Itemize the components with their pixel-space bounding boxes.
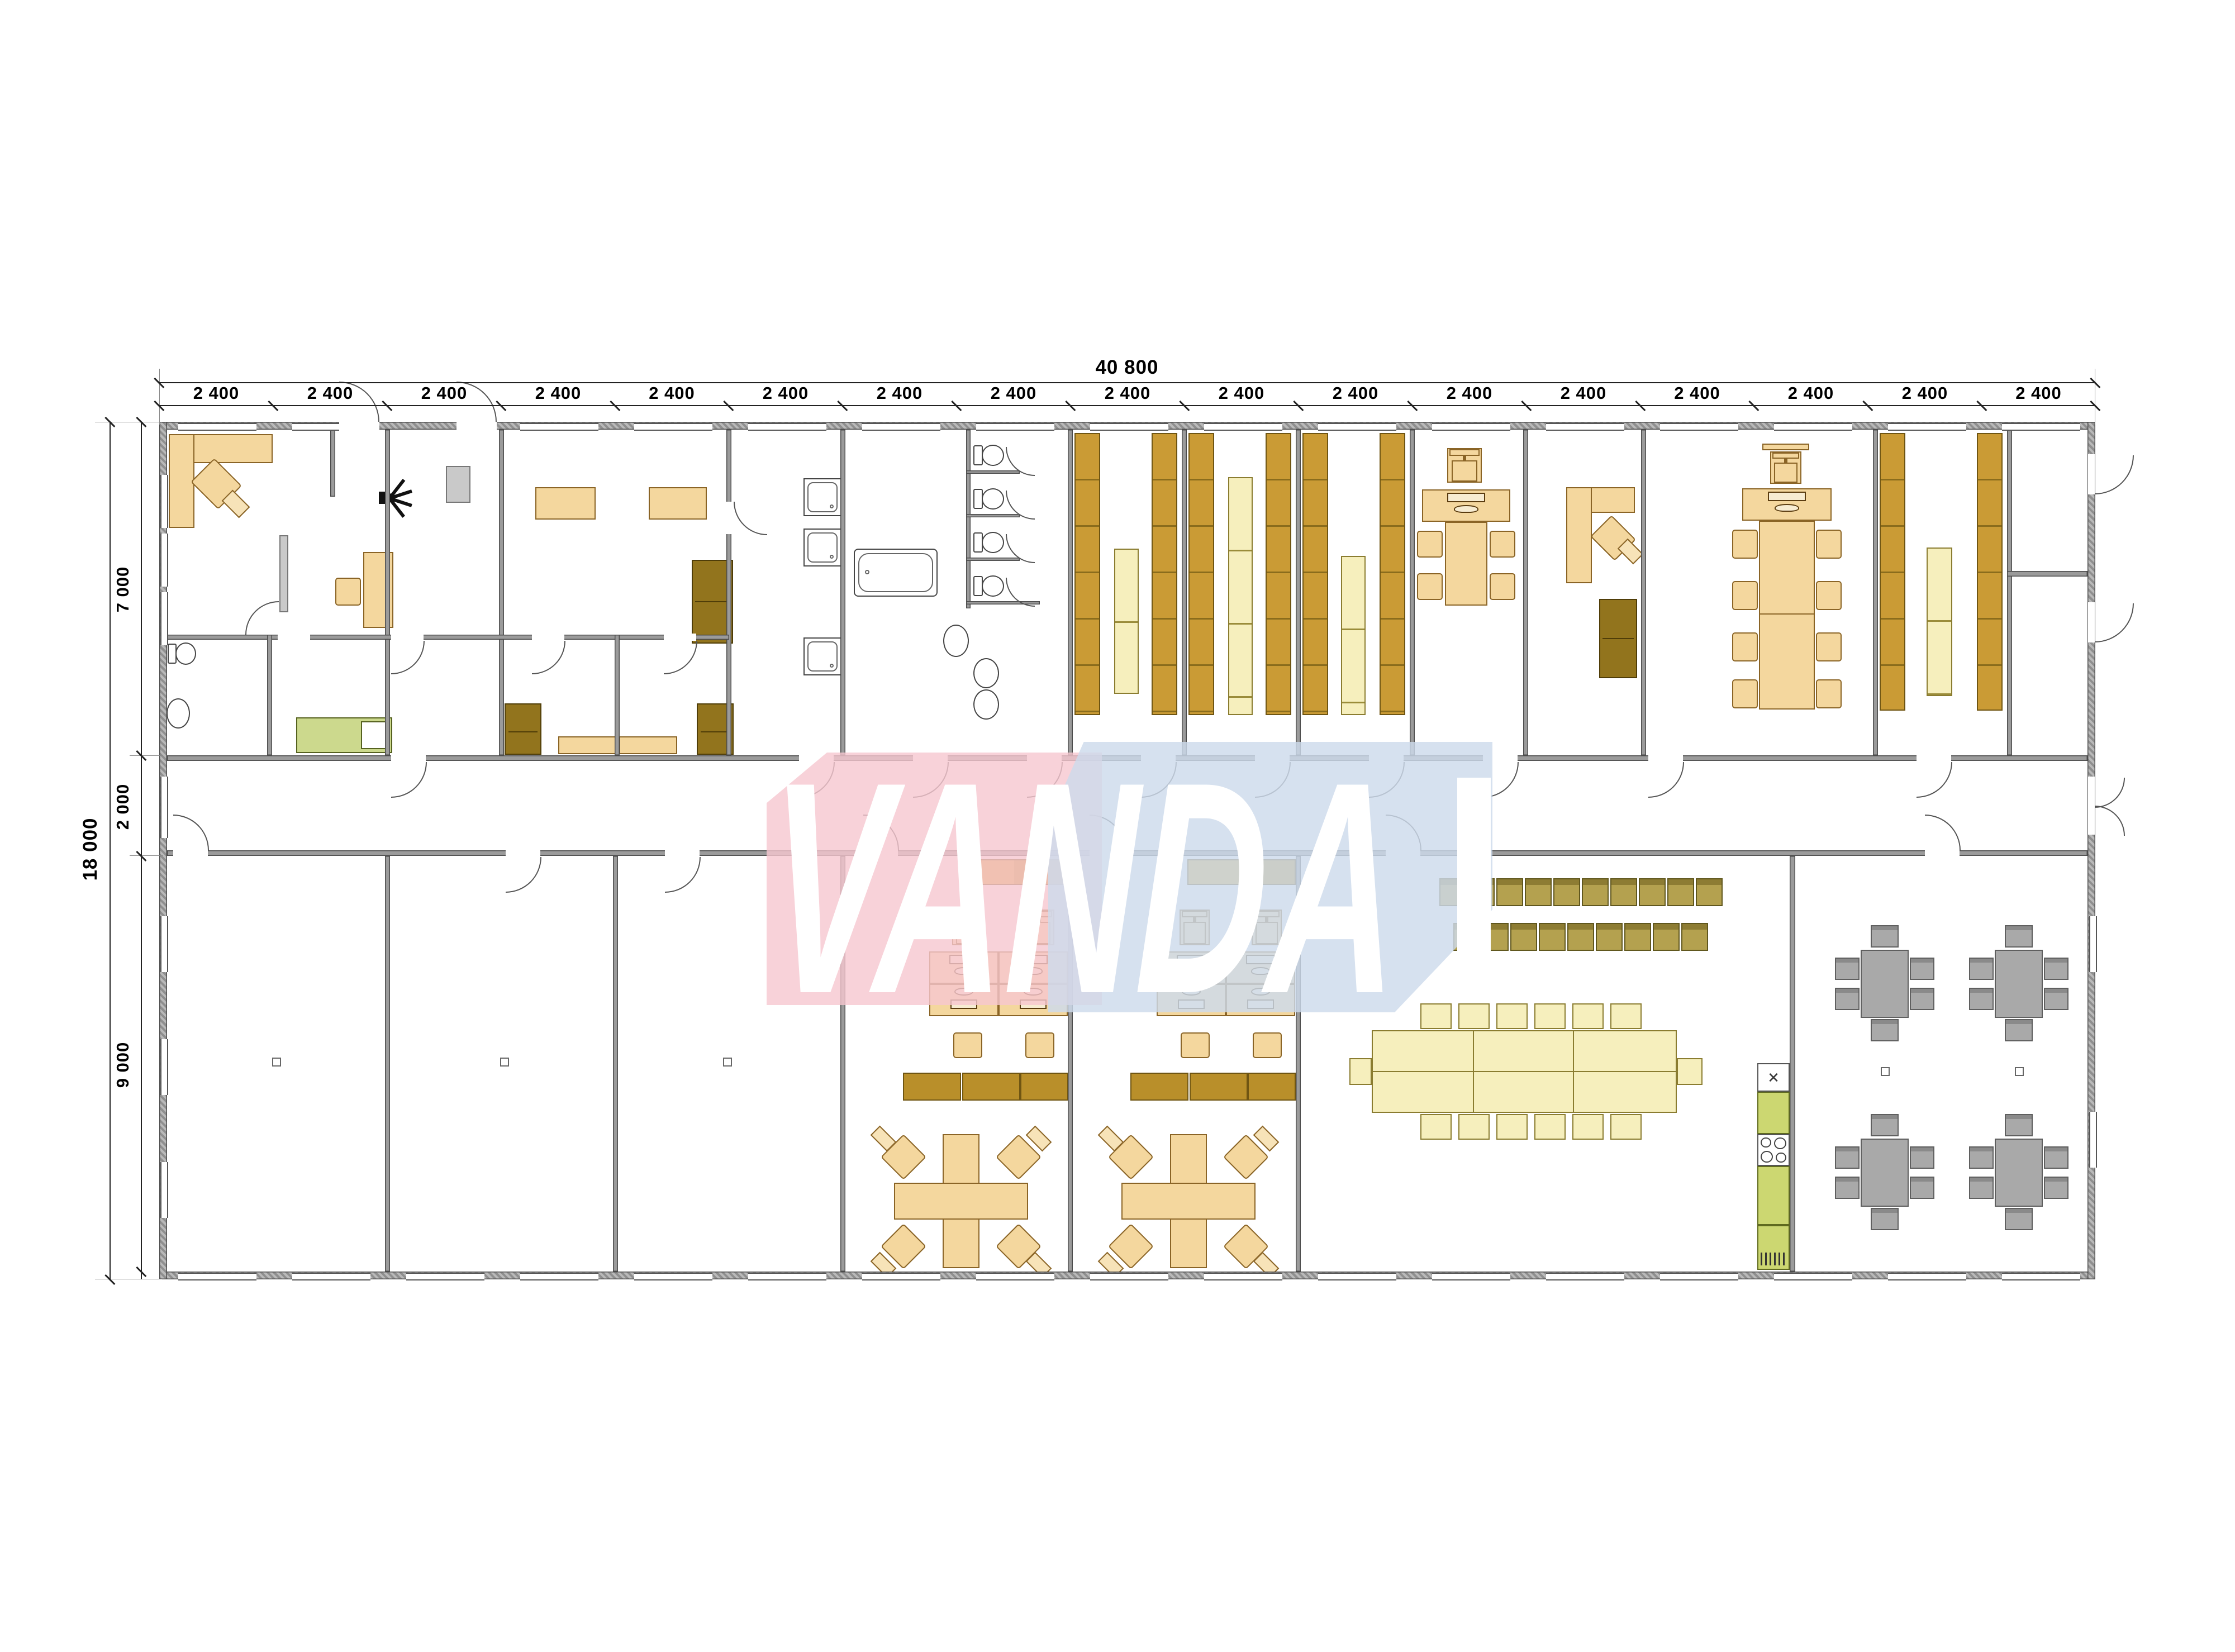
banquet-table bbox=[1372, 1030, 1677, 1113]
window bbox=[1204, 1273, 1282, 1280]
khaki-chair bbox=[1525, 878, 1552, 906]
khaki-chair bbox=[1496, 878, 1523, 906]
door-opening bbox=[278, 634, 310, 641]
khaki-chair bbox=[1596, 923, 1623, 951]
fridge bbox=[1757, 1225, 1790, 1270]
shower-stall bbox=[803, 637, 841, 675]
pale-chair bbox=[1420, 1114, 1452, 1140]
shelving-cabinet bbox=[1302, 433, 1328, 715]
dim-bay-label: 2 400 bbox=[525, 383, 592, 403]
sink bbox=[167, 698, 190, 729]
door-swing bbox=[2095, 455, 2134, 494]
canteen-chair bbox=[1871, 1114, 1899, 1136]
pale-chair bbox=[1610, 1114, 1642, 1140]
khaki-chair bbox=[1539, 923, 1566, 951]
door-swing bbox=[506, 857, 541, 893]
window bbox=[1888, 423, 1966, 431]
chair bbox=[1417, 573, 1443, 600]
interior-wall bbox=[966, 430, 971, 608]
door-opening bbox=[1648, 754, 1683, 762]
closet bbox=[446, 466, 470, 503]
chair bbox=[1816, 581, 1842, 610]
desk bbox=[535, 487, 596, 520]
door-opening bbox=[664, 634, 696, 641]
door-opening bbox=[339, 421, 379, 431]
window bbox=[1660, 423, 1738, 431]
canteen-chair bbox=[1871, 925, 1899, 948]
chair bbox=[1732, 679, 1758, 708]
storage-cabinet bbox=[1248, 1073, 1296, 1101]
interior-wall bbox=[1068, 430, 1073, 755]
chair bbox=[1816, 679, 1842, 708]
dim-bay-label: 2 400 bbox=[1777, 383, 1844, 403]
desk bbox=[619, 736, 677, 754]
khaki-chair bbox=[1610, 878, 1637, 906]
door-swing bbox=[1917, 762, 1952, 798]
canteen-chair bbox=[1969, 1146, 1994, 1169]
khaki-chair bbox=[1639, 878, 1666, 906]
window bbox=[634, 1273, 712, 1280]
toilet bbox=[973, 444, 1005, 467]
window bbox=[160, 1162, 168, 1218]
window bbox=[160, 475, 168, 528]
canteen-chair bbox=[2005, 1208, 2033, 1230]
door-swing bbox=[2095, 778, 2125, 808]
window bbox=[1660, 1273, 1738, 1280]
shower-stall bbox=[803, 529, 841, 566]
canteen-chair bbox=[1835, 988, 1860, 1010]
khaki-chair bbox=[1696, 878, 1723, 906]
interior-wall bbox=[613, 856, 618, 1272]
wall-light-icon bbox=[379, 480, 413, 515]
interior-wall bbox=[167, 635, 729, 640]
window bbox=[1432, 423, 1510, 431]
dim-left-total-label: 18 000 bbox=[79, 793, 102, 905]
shelving-cabinet bbox=[1188, 433, 1214, 715]
dim-line-bays bbox=[159, 405, 2095, 406]
storage-cabinet bbox=[1190, 1073, 1248, 1101]
door-swing bbox=[1648, 762, 1684, 798]
interior-wall bbox=[726, 430, 731, 755]
interior-wall bbox=[385, 856, 390, 1272]
shelving-cabinet bbox=[1380, 433, 1405, 715]
window bbox=[160, 592, 168, 645]
chair bbox=[1732, 530, 1758, 559]
table-end-extension bbox=[1349, 1058, 1372, 1085]
shelf-island bbox=[1228, 477, 1253, 715]
desk bbox=[558, 736, 616, 754]
dim-bay-label: 2 400 bbox=[752, 383, 819, 403]
dim-bay-label: 2 400 bbox=[639, 383, 706, 403]
door-opening bbox=[665, 849, 700, 857]
window bbox=[1774, 423, 1852, 431]
window bbox=[292, 1273, 370, 1280]
interior-wall bbox=[1410, 430, 1415, 755]
window bbox=[520, 423, 598, 431]
canteen-chair bbox=[2005, 1114, 2033, 1136]
interior-wall bbox=[2007, 571, 2087, 577]
canteen-chair bbox=[1835, 1146, 1860, 1169]
shelving-cabinet bbox=[1074, 433, 1100, 715]
dim-line-left-total bbox=[110, 422, 111, 1279]
canteen-chair bbox=[1871, 1208, 1899, 1230]
window bbox=[2002, 423, 2080, 431]
chair bbox=[1816, 632, 1842, 661]
interior-wall bbox=[1790, 856, 1795, 1272]
extension-line bbox=[95, 1279, 162, 1279]
storage-cabinet bbox=[903, 1073, 961, 1101]
canteen-chair bbox=[1969, 1177, 1994, 1199]
dim-left-7000-label: 7 000 bbox=[113, 534, 133, 645]
shelf-island bbox=[1114, 549, 1139, 694]
dim-bay-label: 2 400 bbox=[2005, 383, 2072, 403]
dim-bay-label: 2 400 bbox=[1664, 383, 1731, 403]
khaki-chair bbox=[1567, 923, 1594, 951]
shelving-cabinet bbox=[1266, 433, 1291, 715]
desk-with-computer bbox=[1422, 489, 1510, 522]
window bbox=[634, 423, 712, 431]
chair bbox=[1490, 573, 1515, 600]
storage-cabinet bbox=[1020, 1073, 1068, 1101]
window bbox=[748, 423, 826, 431]
sofa bbox=[1599, 599, 1637, 678]
pale-chair bbox=[1534, 1003, 1566, 1029]
floorplan-page: ✕ 40 800 18 000 7 000 2 000 9 000 2 4002… bbox=[0, 0, 2235, 1652]
window bbox=[160, 916, 168, 972]
canteen-chair bbox=[2044, 988, 2068, 1010]
table-end-extension bbox=[1677, 1058, 1703, 1085]
window bbox=[2002, 1273, 2080, 1280]
door-opening bbox=[456, 421, 497, 431]
canteen-chair bbox=[1910, 988, 1934, 1010]
stove bbox=[1757, 1134, 1790, 1166]
canteen-chair bbox=[1871, 1019, 1899, 1041]
pale-chair bbox=[1572, 1114, 1604, 1140]
armchair bbox=[505, 703, 541, 755]
canteen-chair bbox=[2044, 1177, 2068, 1199]
interior-wall bbox=[267, 635, 272, 755]
door-swing bbox=[2095, 806, 2125, 836]
window bbox=[160, 1039, 168, 1095]
window bbox=[1432, 1273, 1510, 1280]
interior-wall bbox=[966, 470, 1020, 474]
door-opening bbox=[173, 849, 208, 857]
canteen-table bbox=[1995, 950, 2043, 1018]
meeting-table bbox=[1759, 521, 1815, 710]
storage-cabinet bbox=[1130, 1073, 1188, 1101]
extension-line bbox=[95, 422, 162, 422]
khaki-chair bbox=[1653, 923, 1680, 951]
floor-marker bbox=[272, 1058, 281, 1067]
dim-bay-label: 2 400 bbox=[411, 383, 478, 403]
toilet bbox=[973, 487, 1005, 511]
khaki-chair bbox=[1681, 923, 1708, 951]
door-swing bbox=[2095, 603, 2134, 642]
canteen-chair bbox=[1910, 1177, 1934, 1199]
desk bbox=[1445, 522, 1487, 606]
interior-wall bbox=[1523, 430, 1528, 755]
khaki-chair bbox=[1624, 923, 1651, 951]
window bbox=[1318, 1273, 1396, 1280]
desk bbox=[169, 434, 194, 528]
door-swing bbox=[391, 641, 425, 674]
dim-bay-label: 2 400 bbox=[1436, 383, 1503, 403]
window bbox=[1204, 423, 1282, 431]
extension-line bbox=[130, 855, 163, 856]
door-swing bbox=[532, 641, 565, 674]
door-opening bbox=[506, 849, 540, 857]
dim-bay-label: 2 400 bbox=[1094, 383, 1161, 403]
dim-bay-label: 2 400 bbox=[183, 383, 250, 403]
canteen-chair bbox=[1969, 988, 1994, 1010]
window bbox=[160, 777, 168, 838]
dim-bay-label: 2 400 bbox=[1550, 383, 1617, 403]
floor-marker bbox=[500, 1058, 509, 1067]
window bbox=[2089, 1112, 2097, 1168]
kitchen-sink: ✕ bbox=[1757, 1063, 1790, 1092]
khaki-chair bbox=[1553, 878, 1580, 906]
dim-bay-label: 2 400 bbox=[980, 383, 1047, 403]
interior-wall bbox=[385, 430, 390, 755]
interior-wall bbox=[1873, 430, 1878, 755]
canteen-table bbox=[1861, 950, 1909, 1018]
dim-line-left-segments bbox=[141, 422, 142, 1279]
window bbox=[1774, 1273, 1852, 1280]
toilet bbox=[973, 531, 1005, 554]
khaki-chair bbox=[1582, 878, 1609, 906]
shelf-island bbox=[1927, 548, 1952, 696]
interior-wall bbox=[966, 558, 1020, 561]
canteen-chair bbox=[1910, 1146, 1934, 1169]
chair bbox=[1816, 530, 1842, 559]
desk bbox=[1121, 1183, 1256, 1220]
monitor bbox=[1770, 451, 1801, 484]
extension-line bbox=[130, 755, 163, 756]
canteen-chair bbox=[2044, 1146, 2068, 1169]
canteen-chair bbox=[2044, 958, 2068, 980]
door-swing bbox=[664, 641, 697, 674]
dim-bay-label: 2 400 bbox=[297, 383, 364, 403]
window bbox=[178, 423, 256, 431]
chair bbox=[335, 578, 361, 606]
interior-wall bbox=[966, 514, 1020, 517]
door-opening bbox=[391, 754, 426, 762]
watermark-bar bbox=[1457, 778, 1491, 963]
interior-wall bbox=[1641, 430, 1646, 755]
floor-marker bbox=[2015, 1067, 2024, 1076]
window bbox=[976, 1273, 1054, 1280]
canteen-table bbox=[1995, 1139, 2043, 1207]
door-swing bbox=[734, 502, 767, 535]
window bbox=[520, 1273, 598, 1280]
window bbox=[862, 423, 940, 431]
window bbox=[1888, 1273, 1966, 1280]
canteen-chair bbox=[1969, 958, 1994, 980]
desk-with-computer bbox=[1742, 488, 1832, 521]
window bbox=[1090, 423, 1168, 431]
floor-marker bbox=[723, 1058, 732, 1067]
desk bbox=[894, 1183, 1028, 1220]
window bbox=[2089, 916, 2097, 972]
interior-wall bbox=[1296, 430, 1301, 755]
dim-left-2000-label: 2 000 bbox=[113, 751, 133, 863]
kitchen-counter bbox=[1757, 1166, 1790, 1225]
pale-chair bbox=[1496, 1114, 1528, 1140]
door-opening bbox=[532, 634, 564, 641]
door-opening bbox=[2088, 602, 2095, 642]
pale-chair bbox=[1458, 1114, 1490, 1140]
shelf-island bbox=[1341, 556, 1366, 715]
canteen-chair bbox=[1910, 958, 1934, 980]
window bbox=[1318, 423, 1396, 431]
sink bbox=[973, 658, 999, 688]
door-swing bbox=[173, 815, 209, 850]
chair bbox=[1732, 581, 1758, 610]
interior-wall bbox=[1182, 430, 1187, 755]
floor-marker bbox=[1881, 1067, 1890, 1076]
monitor-bar bbox=[1762, 444, 1809, 450]
shelving-cabinet bbox=[1152, 433, 1177, 715]
sink bbox=[973, 689, 999, 720]
chair bbox=[1732, 632, 1758, 661]
door-opening bbox=[1925, 849, 1960, 857]
pale-chair bbox=[1572, 1003, 1604, 1029]
dim-bay-label: 2 400 bbox=[1208, 383, 1275, 403]
khaki-chair bbox=[1667, 878, 1694, 906]
kitchen-counter bbox=[1757, 1092, 1790, 1134]
door-swing bbox=[1925, 815, 1961, 850]
sink bbox=[943, 625, 969, 657]
door-opening bbox=[726, 502, 734, 534]
window bbox=[862, 1273, 940, 1280]
window bbox=[976, 423, 1054, 431]
chair bbox=[1417, 531, 1443, 558]
interior-wall bbox=[615, 635, 620, 755]
interior-wall bbox=[499, 430, 504, 755]
pale-chair bbox=[1610, 1003, 1642, 1029]
canteen-chair bbox=[1835, 1177, 1860, 1199]
door-opening bbox=[2088, 454, 2095, 494]
door-opening bbox=[2088, 777, 2095, 835]
canteen-chair bbox=[2005, 1019, 2033, 1041]
window bbox=[1546, 423, 1624, 431]
pale-chair bbox=[1534, 1114, 1566, 1140]
dim-bay-label: 2 400 bbox=[866, 383, 933, 403]
door-swing bbox=[245, 601, 279, 635]
desk bbox=[649, 487, 707, 520]
shelving-cabinet bbox=[1977, 433, 2003, 711]
window bbox=[748, 1273, 826, 1280]
desk bbox=[1566, 487, 1592, 583]
extension-line bbox=[159, 369, 160, 425]
storage-cabinet bbox=[962, 1073, 1020, 1101]
door-swing bbox=[665, 857, 701, 893]
door-opening bbox=[391, 634, 424, 641]
canteen-table bbox=[1861, 1139, 1909, 1207]
shower-stall bbox=[803, 478, 841, 516]
window bbox=[406, 1273, 484, 1280]
interior-wall bbox=[2007, 430, 2012, 755]
interior-wall bbox=[840, 430, 845, 755]
door-opening bbox=[1917, 754, 1951, 762]
extension-line bbox=[2095, 369, 2095, 425]
pale-chair bbox=[1496, 1003, 1528, 1029]
window bbox=[1546, 1273, 1624, 1280]
canteen-chair bbox=[1835, 958, 1860, 980]
door-swing bbox=[391, 762, 427, 798]
window bbox=[1090, 1273, 1168, 1280]
monitor bbox=[1447, 448, 1482, 483]
interior-wall bbox=[330, 430, 335, 497]
toilet bbox=[168, 641, 197, 666]
window bbox=[178, 1273, 256, 1280]
dim-bay-label: 2 400 bbox=[1322, 383, 1389, 403]
dim-total-width-label: 40 800 bbox=[1071, 356, 1183, 379]
chair bbox=[1490, 531, 1515, 558]
shelving-cabinet bbox=[1880, 433, 1905, 711]
dim-left-9000-label: 9 000 bbox=[113, 1009, 133, 1121]
toilet bbox=[973, 574, 1005, 598]
watermark-text: VANDA bbox=[764, 774, 1443, 1015]
dim-bay-label: 2 400 bbox=[1891, 383, 1958, 403]
bed bbox=[296, 717, 392, 753]
canteen-chair bbox=[2005, 925, 2033, 948]
window bbox=[160, 534, 168, 587]
bathtub bbox=[854, 549, 938, 597]
pale-chair bbox=[1458, 1003, 1490, 1029]
khaki-chair bbox=[1510, 923, 1537, 951]
wardrobe bbox=[279, 535, 288, 612]
